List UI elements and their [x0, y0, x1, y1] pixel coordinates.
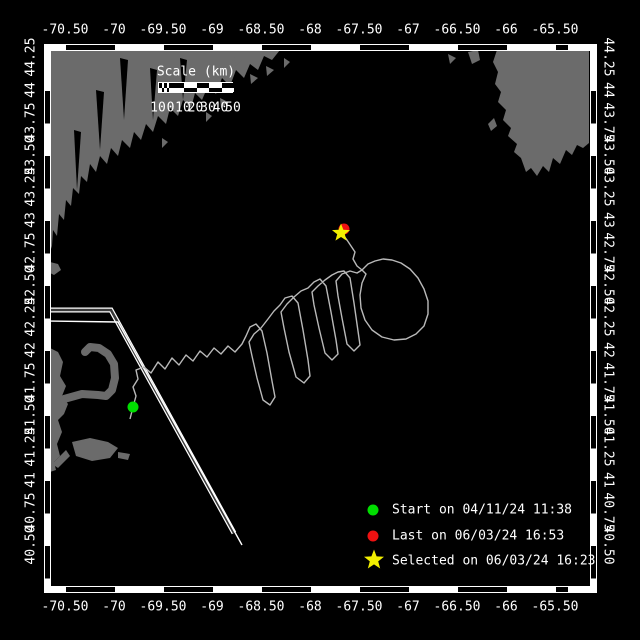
y-axis-label-right: 44	[602, 82, 615, 98]
scale-bar-segment	[209, 88, 222, 93]
shipping-lane-core	[47, 310, 234, 533]
x-axis-label-bottom: -70	[102, 601, 125, 614]
x-axis-label-bottom: -67.50	[336, 601, 383, 614]
y-axis-label-left: 43.25	[25, 167, 38, 206]
x-axis-label-bottom: -66	[494, 601, 517, 614]
x-axis-label-top: -68	[298, 24, 321, 37]
scale-bar-segment	[172, 88, 185, 93]
scale-bar-segment	[184, 88, 197, 93]
y-axis-label-right: 43.25	[602, 167, 615, 206]
x-axis-label-top: -70.50	[42, 24, 89, 37]
island-nantucket	[118, 452, 130, 460]
island	[448, 54, 456, 64]
island	[284, 58, 290, 68]
island	[266, 66, 274, 76]
x-axis-label-bottom: -68	[298, 601, 321, 614]
x-axis-label-bottom: -68.50	[238, 601, 285, 614]
x-axis-label-bottom: -65.50	[532, 601, 579, 614]
x-axis-label-top: -66.50	[434, 24, 481, 37]
y-axis-label-right: 41.25	[602, 427, 615, 466]
x-axis-label-top: -67	[396, 24, 419, 37]
x-axis-label-top: -66	[494, 24, 517, 37]
frame-bottom	[44, 586, 597, 593]
scale-tick-label: 0	[167, 102, 175, 115]
island	[250, 74, 258, 84]
map-canvas[interactable]	[0, 0, 640, 640]
frame-left	[44, 44, 51, 593]
y-axis-label-right: 43	[602, 212, 615, 228]
y-axis-label-right: 40.50	[602, 525, 615, 564]
legend-selected-label: Selected on 06/03/24 16:23	[392, 554, 596, 569]
scale-bar	[158, 82, 233, 93]
map-stage: -70.50-70.50-70-70-69.50-69.50-69-69-68.…	[0, 0, 640, 640]
scale-bar-cells	[159, 83, 232, 92]
y-axis-label-left: 44.25	[25, 37, 38, 76]
frame-right	[590, 44, 597, 593]
y-axis-label-right: 42.25	[602, 297, 615, 336]
x-axis-label-top: -69.50	[140, 24, 187, 37]
x-axis-label-top: -65.50	[532, 24, 579, 37]
x-axis-label-bottom: -69	[200, 601, 223, 614]
island-grand-manan	[468, 50, 480, 64]
x-axis-label-bottom: -70.50	[42, 601, 89, 614]
y-axis-label-left: 41.25	[25, 427, 38, 466]
y-axis-label-right: 42	[602, 342, 615, 358]
x-axis-label-bottom: -66.50	[434, 601, 481, 614]
x-axis-label-bottom: -67	[396, 601, 419, 614]
scale-tick-label: 10	[150, 102, 166, 115]
legend-start-dot-icon	[368, 505, 379, 516]
y-axis-label-right: 41	[602, 472, 615, 488]
x-axis-label-top: -70	[102, 24, 125, 37]
y-axis-label-left: 42	[25, 342, 38, 358]
island-marthas-vineyard	[72, 438, 118, 461]
scale-bar-segment	[197, 88, 210, 93]
start-position-marker[interactable]	[128, 402, 139, 413]
legend-last-label: Last on 06/03/24 16:53	[392, 529, 564, 544]
scale-bar-segment	[222, 88, 235, 93]
island-brier	[488, 118, 497, 131]
frame-top	[44, 44, 597, 51]
scale-tick-label: 50	[225, 102, 241, 115]
y-axis-label-left: 40.50	[25, 525, 38, 564]
x-axis-label-bottom: -69.50	[140, 601, 187, 614]
shipping-lane-boundary	[47, 310, 234, 533]
x-axis-label-top: -68.50	[238, 24, 285, 37]
y-axis-label-left: 44	[25, 82, 38, 98]
shipping-lanes	[47, 310, 242, 545]
legend-start-label: Start on 04/11/24 11:38	[392, 503, 572, 518]
x-axis-label-top: -67.50	[336, 24, 383, 37]
land-cape-ann	[50, 262, 61, 275]
island	[162, 138, 168, 148]
x-axis-label-top: -69	[200, 24, 223, 37]
land-cape-cod-arm	[64, 347, 115, 399]
y-axis-label-left: 41	[25, 472, 38, 488]
legend-last-dot-icon	[368, 531, 379, 542]
y-axis-label-right: 44.25	[602, 37, 615, 76]
scale-bar-title: Scale (km)	[157, 65, 235, 80]
shipping-lane-line	[47, 321, 242, 545]
y-axis-label-left: 42.25	[25, 297, 38, 336]
legend-selected-star-icon	[363, 549, 385, 571]
land-nova-scotia	[493, 50, 589, 176]
y-axis-label-left: 43	[25, 212, 38, 228]
glider-track[interactable]	[130, 233, 428, 419]
